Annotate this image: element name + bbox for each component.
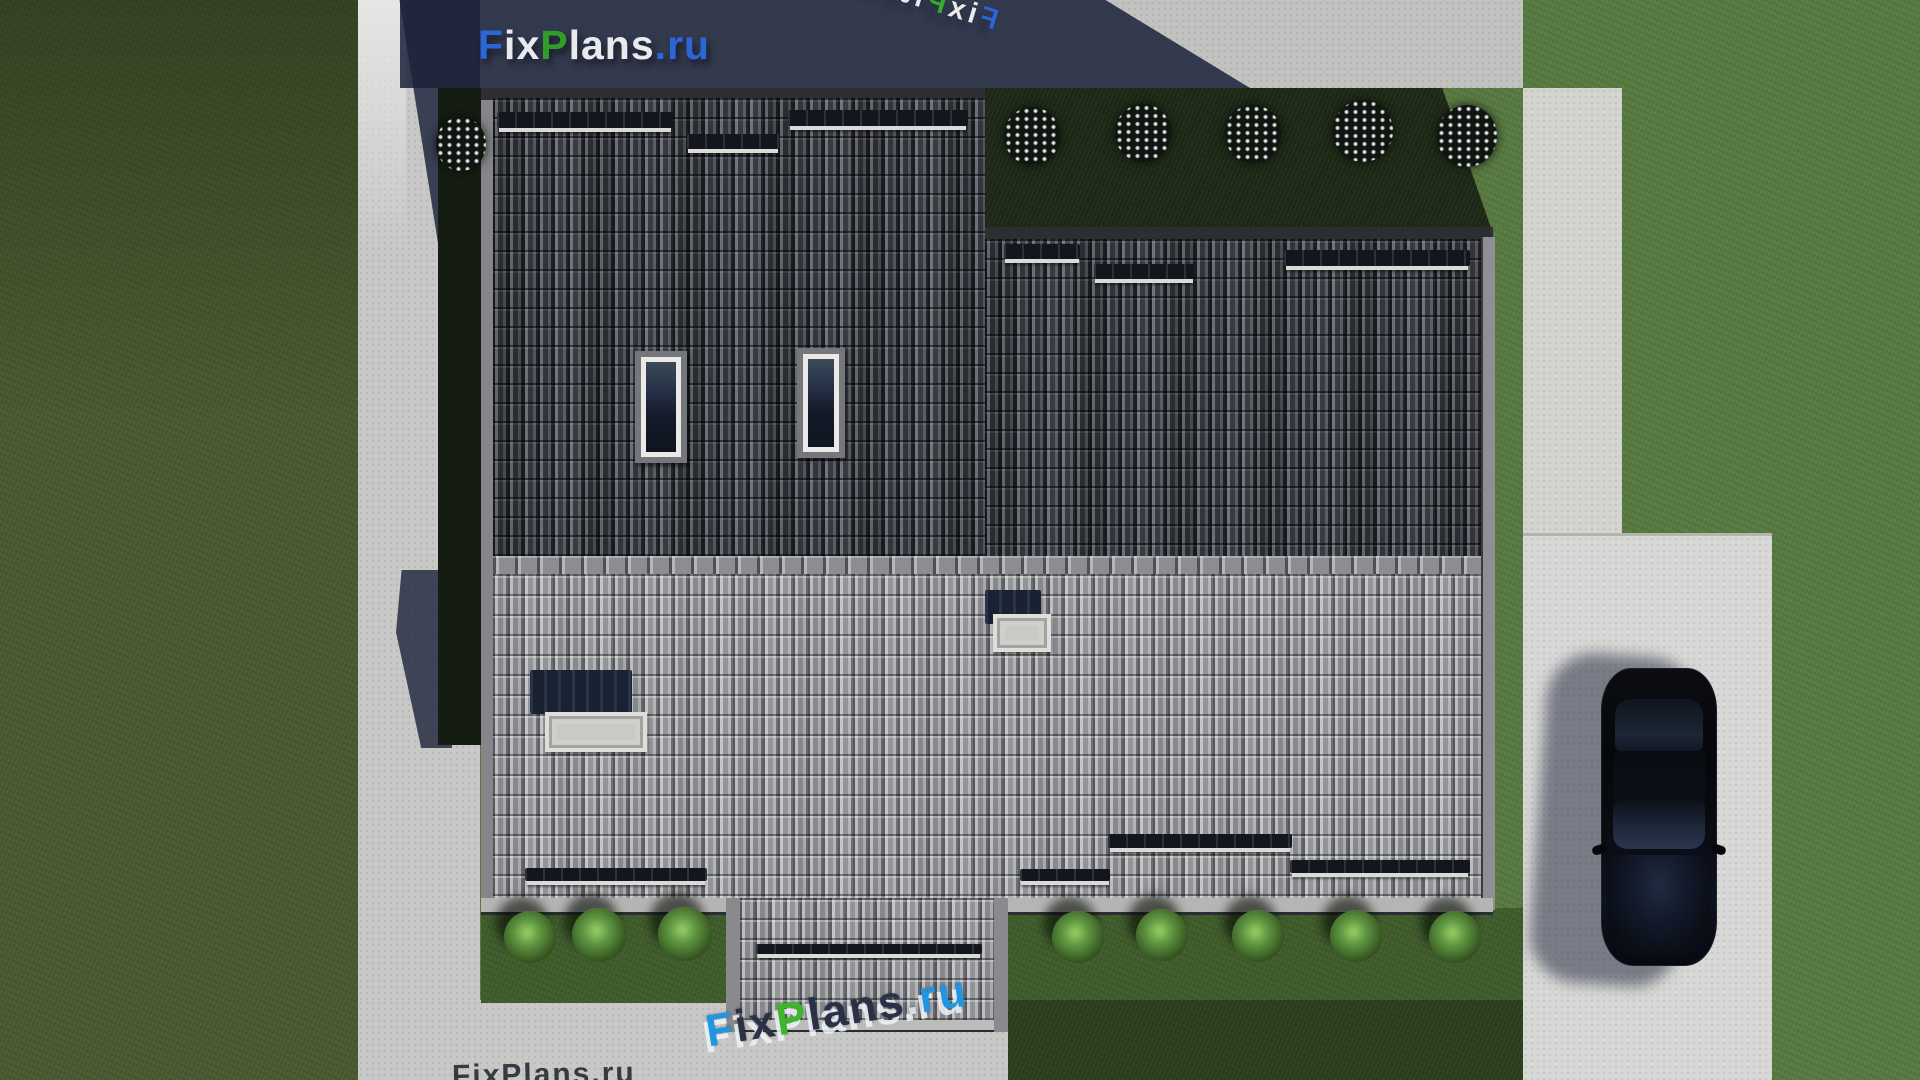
car-hood	[1607, 855, 1711, 955]
lawn-bottom-right-shaded	[1008, 1000, 1523, 1080]
walkway-right	[1523, 88, 1622, 533]
roof-hatch-frame	[993, 614, 1051, 652]
car	[1601, 668, 1717, 966]
skylight-glass	[808, 359, 834, 447]
flowering-shrub	[436, 117, 486, 171]
watermark-logo-segment: F	[478, 22, 504, 68]
snow-guard	[1284, 250, 1470, 266]
snow-guard	[1020, 869, 1110, 881]
snow-guard	[1290, 860, 1470, 873]
snow-guard	[497, 112, 673, 128]
watermark-logo: FixPlans.ru	[478, 22, 710, 69]
snow-guard	[788, 110, 968, 126]
flowering-shrub	[1225, 105, 1281, 163]
roof-fascia-right	[1481, 237, 1495, 910]
flowering-shrub	[1004, 107, 1060, 165]
skylight-1	[635, 351, 687, 463]
watermark-logo-segment: lans	[569, 22, 655, 68]
snow-guard	[1004, 244, 1080, 259]
roof-hatch-opening	[530, 670, 632, 714]
watermark-clipped-bottom-left: FixPlans.ru	[452, 1056, 636, 1080]
roof-hatch-frame	[545, 712, 647, 752]
watermark-logo-segment: ix	[504, 22, 540, 68]
watermark-3d-segment: ru	[915, 965, 971, 1023]
bush	[1330, 910, 1382, 962]
flowering-shrub	[1115, 104, 1171, 162]
roof-upper-left-plane	[493, 98, 985, 568]
flowering-shrub	[1437, 105, 1497, 167]
porch-fascia-right	[994, 898, 1008, 1032]
path-left-sunlit-edge	[358, 0, 406, 250]
bush	[1052, 911, 1104, 963]
snow-guard	[1094, 264, 1194, 279]
lawn-left-shade	[0, 0, 360, 420]
skylight-glass	[646, 362, 676, 452]
snow-guard	[1108, 834, 1292, 848]
snow-guard	[525, 868, 707, 881]
bush	[1232, 910, 1284, 962]
watermark-logo-segment: .	[655, 22, 667, 68]
bush	[1136, 909, 1188, 961]
watermark-logo-segment: ru	[667, 22, 710, 68]
car-roof	[1613, 751, 1705, 801]
snow-guard	[687, 134, 779, 149]
bush	[504, 911, 556, 963]
snow-guard	[756, 944, 982, 954]
bush	[1429, 911, 1481, 963]
skylight-2	[797, 348, 845, 458]
aerial-house-render: FixPlans.ru FixPlans.ru FixPlans.ru FixP…	[0, 0, 1920, 1080]
bush	[658, 907, 712, 961]
garden-bed-left	[438, 88, 481, 745]
car-windshield	[1613, 801, 1705, 849]
flowering-shrub	[1333, 100, 1393, 162]
roof-upper-right-plane	[985, 239, 1481, 568]
roof-eave-top-right	[985, 227, 1493, 239]
watermark-logo-segment: P	[540, 22, 568, 68]
bush	[572, 908, 626, 962]
car-rear-window	[1615, 699, 1703, 751]
